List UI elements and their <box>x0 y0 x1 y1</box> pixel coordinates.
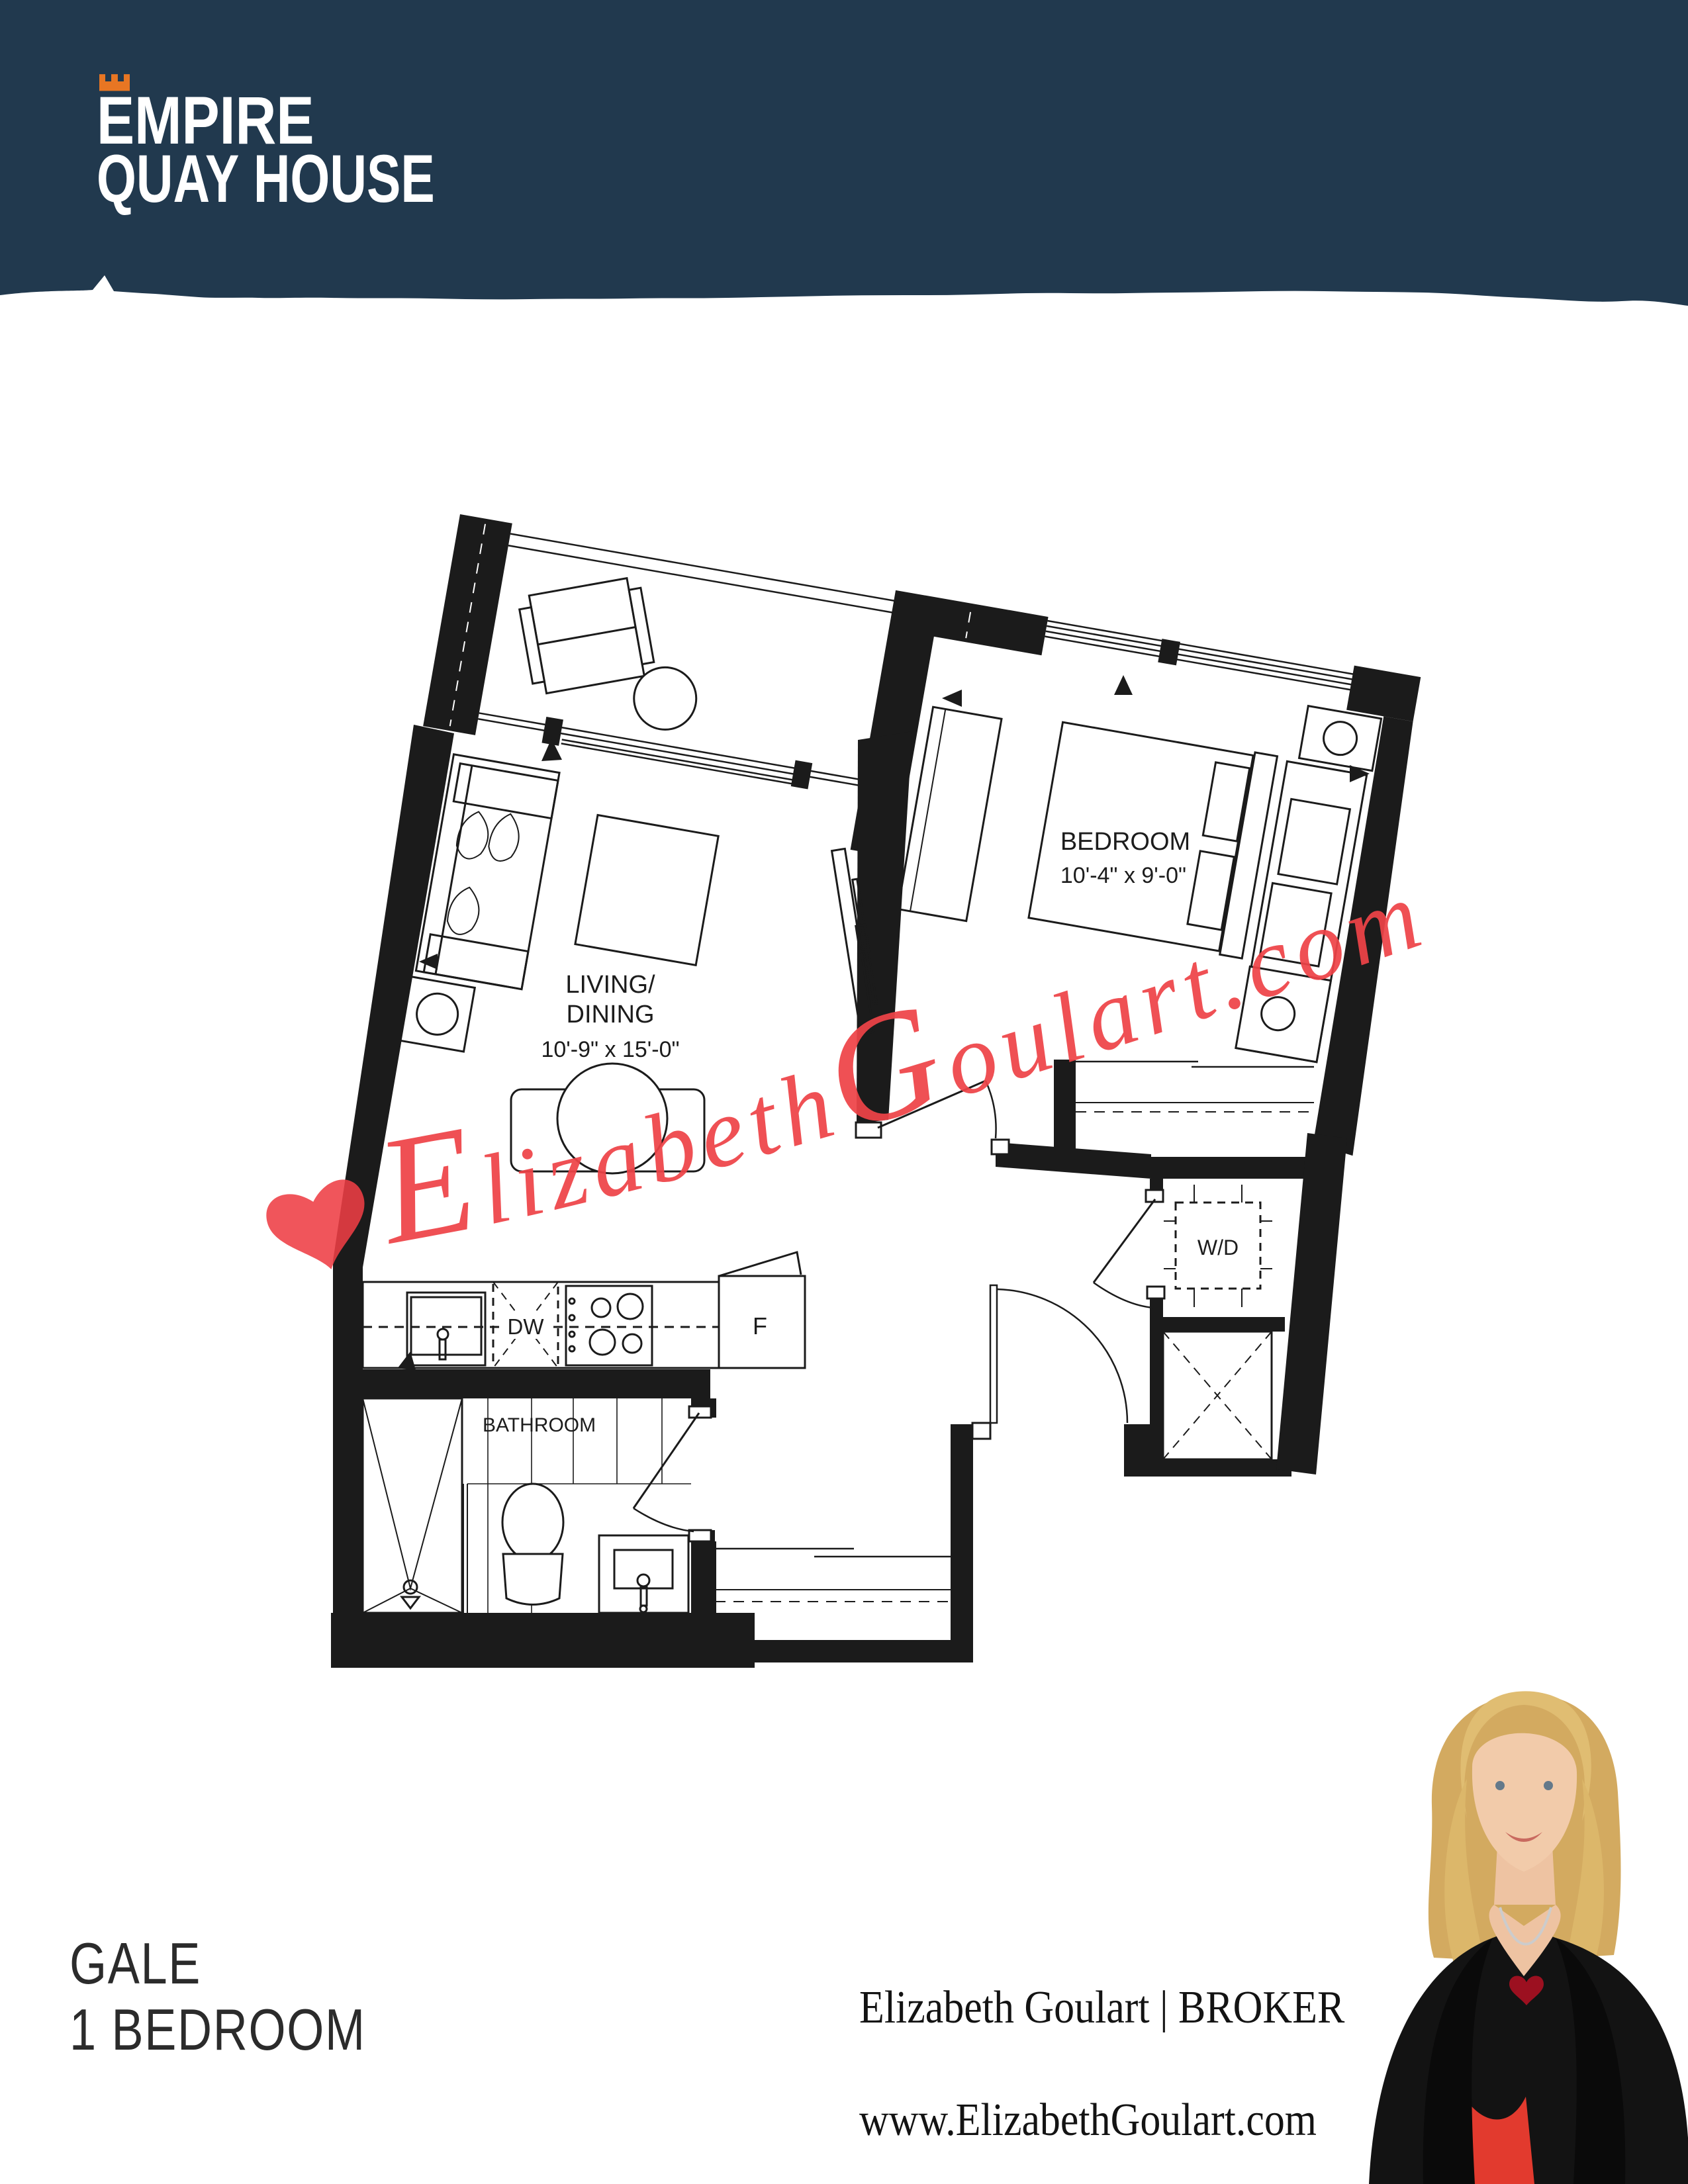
svg-text:ElizabethGoulart.com: ElizabethGoulart.com <box>364 860 1433 1276</box>
